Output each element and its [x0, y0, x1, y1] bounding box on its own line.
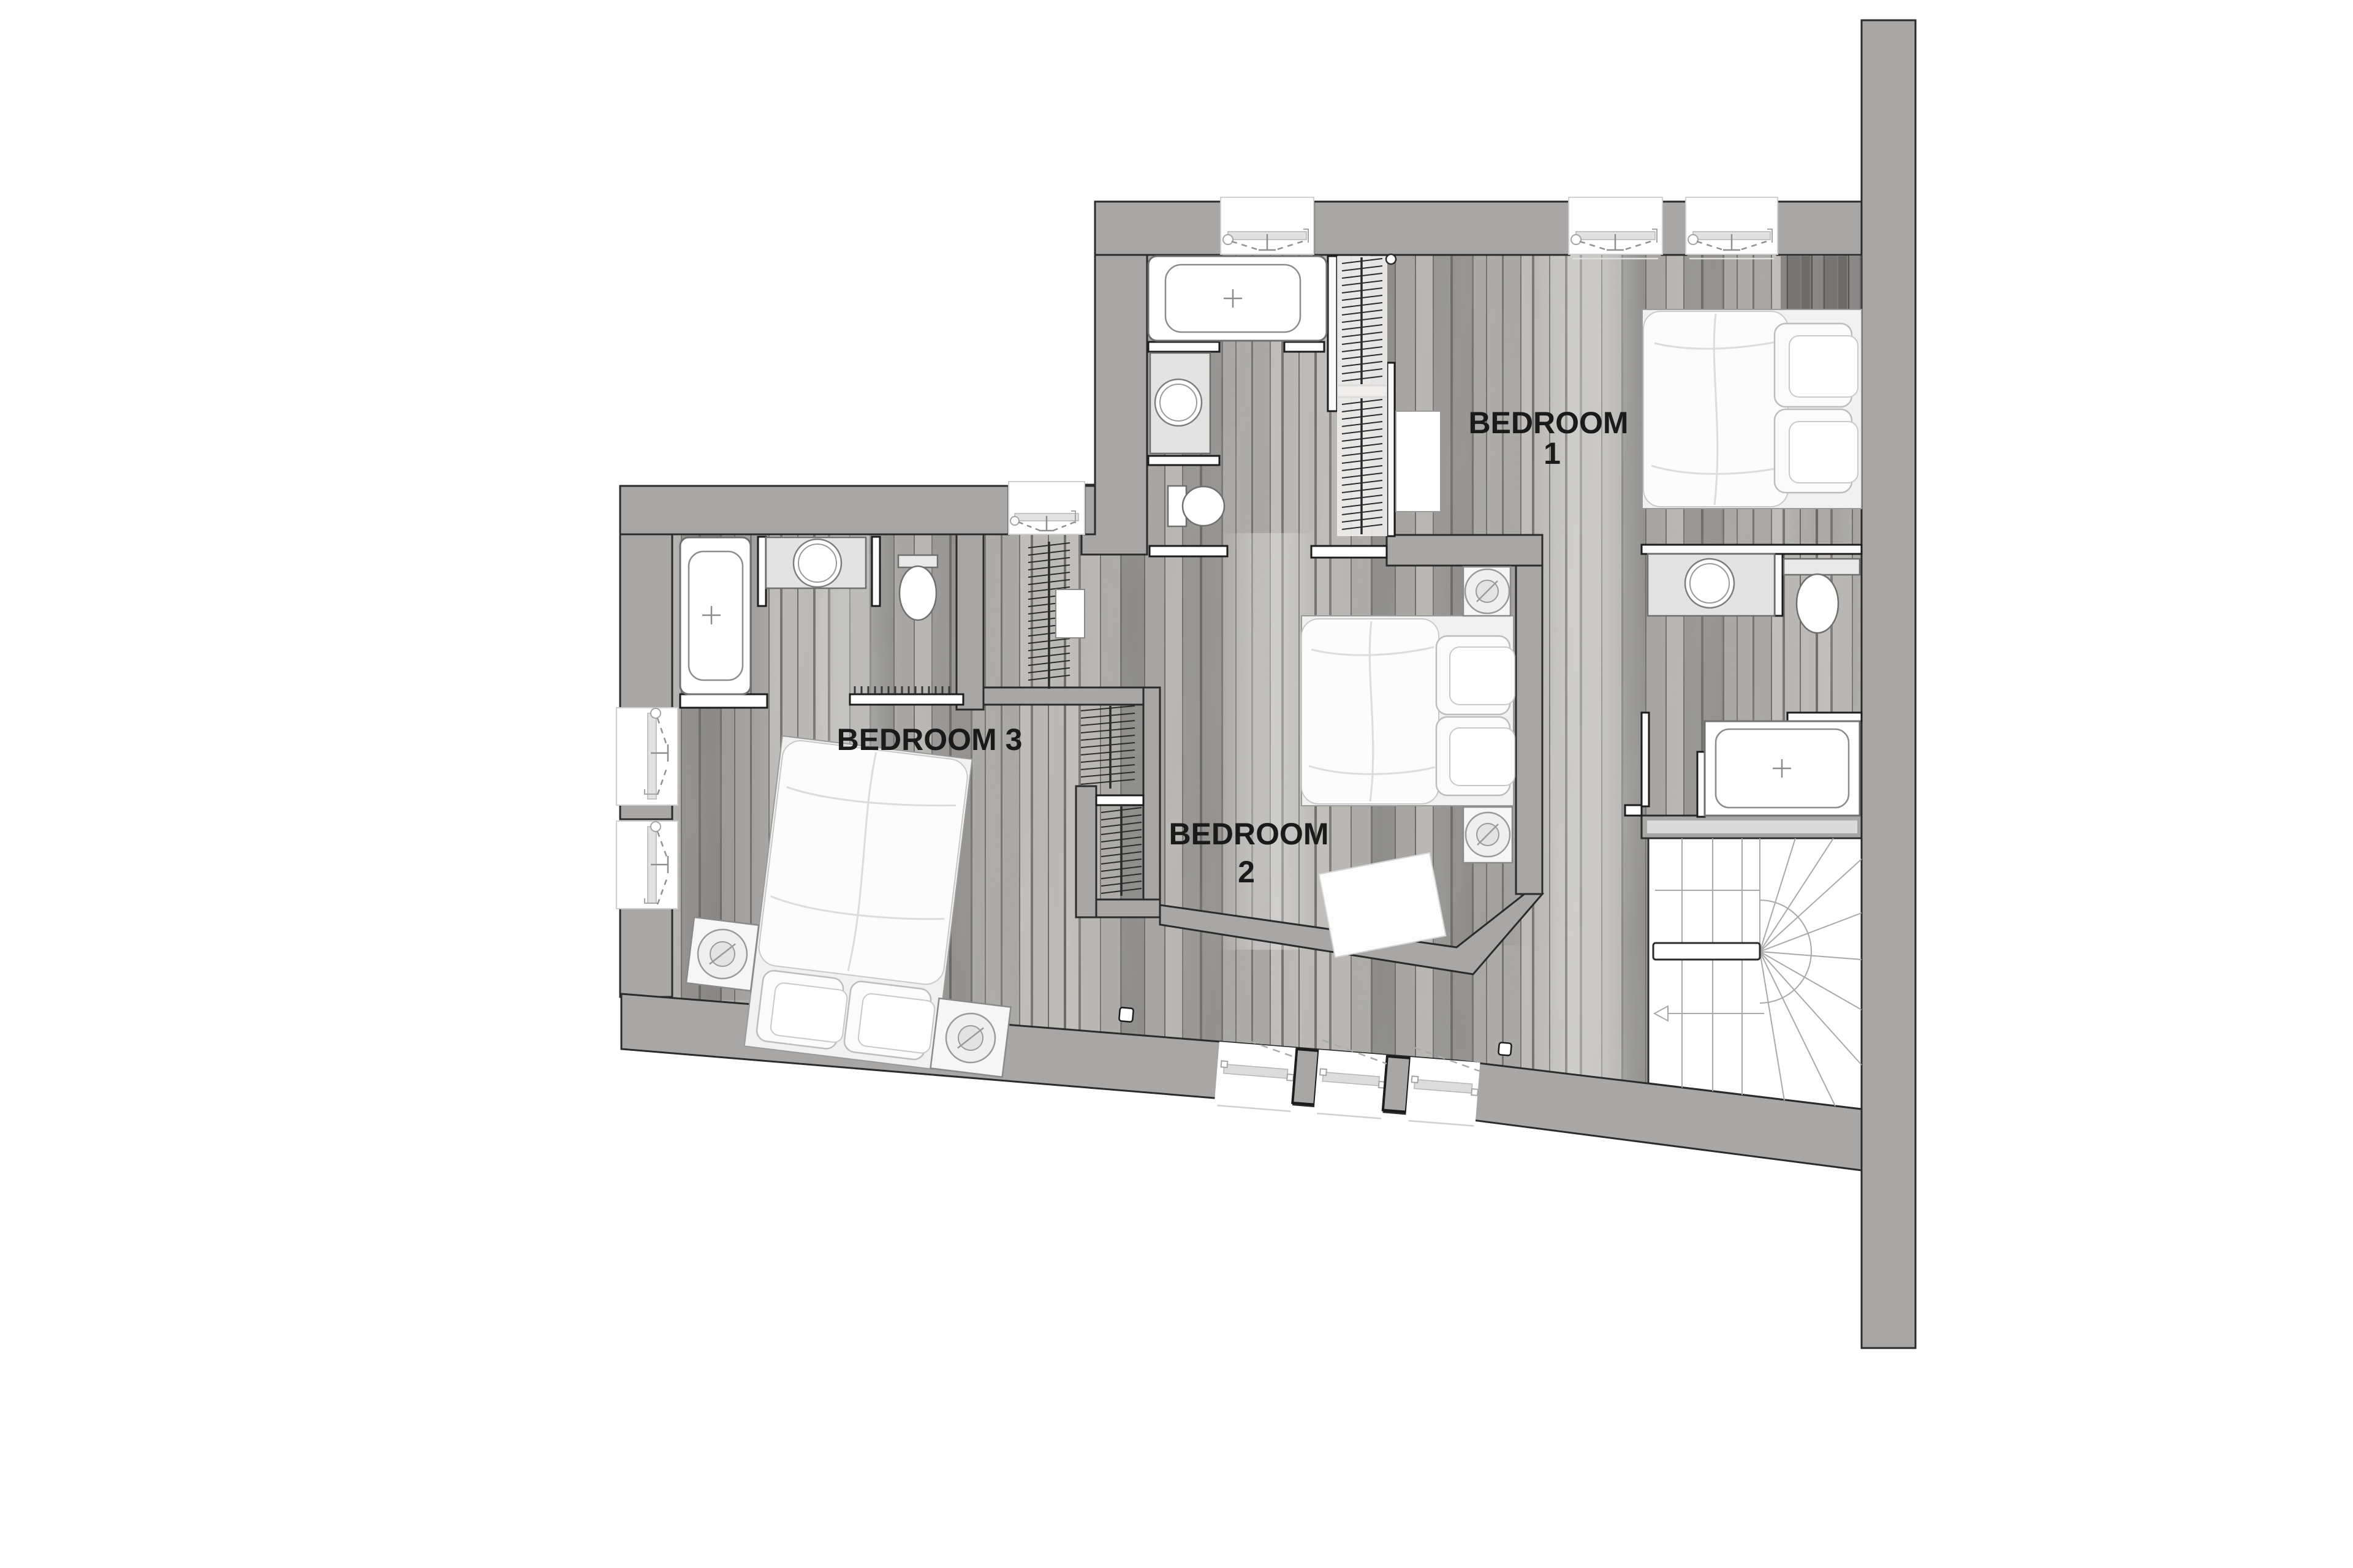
svg-text:BEDROOM: BEDROOM — [1169, 817, 1328, 851]
svg-text:BEDROOM 3: BEDROOM 3 — [837, 722, 1023, 757]
svg-text:BEDROOM: BEDROOM — [1468, 406, 1628, 440]
svg-text:2: 2 — [1238, 855, 1255, 889]
svg-text:1: 1 — [1544, 436, 1561, 471]
